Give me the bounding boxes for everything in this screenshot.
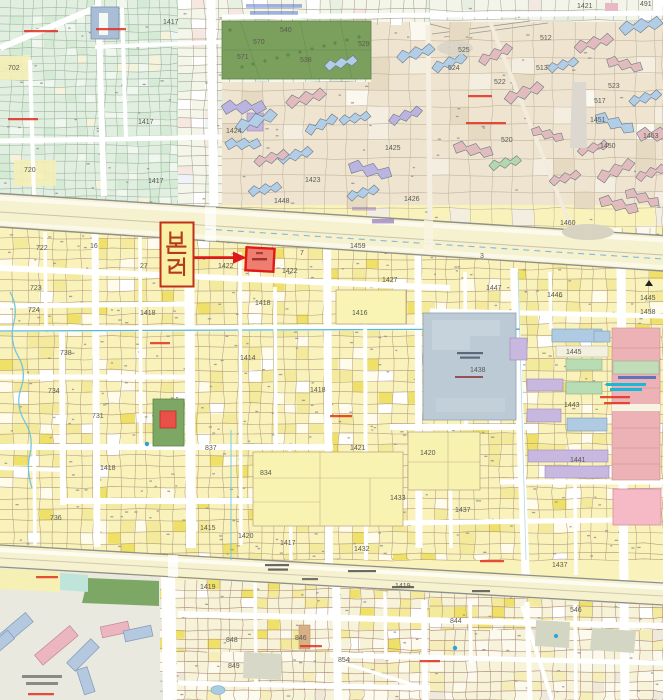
svg-text:1420: 1420: [420, 450, 436, 457]
svg-text:520: 520: [501, 137, 513, 144]
svg-text:538: 538: [300, 57, 312, 64]
svg-text:1415: 1415: [200, 525, 216, 532]
svg-text:570: 570: [253, 39, 265, 46]
svg-text:1414: 1414: [240, 355, 256, 362]
svg-text:1424: 1424: [226, 128, 242, 135]
svg-text:736: 736: [50, 515, 62, 522]
svg-text:512: 512: [540, 35, 552, 42]
svg-text:724: 724: [28, 307, 40, 314]
svg-text:1446: 1446: [547, 292, 563, 299]
svg-text:1419: 1419: [395, 583, 411, 590]
svg-text:854: 854: [338, 657, 350, 664]
svg-text:1417: 1417: [148, 178, 164, 185]
svg-text:723: 723: [30, 285, 42, 292]
svg-text:1417: 1417: [280, 540, 296, 547]
svg-text:27: 27: [140, 263, 148, 270]
svg-text:1437: 1437: [455, 507, 471, 514]
svg-text:837: 837: [205, 445, 217, 452]
svg-text:1450: 1450: [600, 143, 616, 150]
svg-text:720: 720: [24, 167, 36, 174]
svg-text:834: 834: [260, 470, 272, 477]
svg-text:525: 525: [458, 47, 470, 54]
svg-text:540: 540: [280, 27, 292, 34]
svg-text:1445: 1445: [566, 349, 582, 356]
svg-text:7: 7: [300, 250, 304, 257]
svg-text:1443: 1443: [564, 402, 580, 409]
svg-text:3: 3: [480, 253, 484, 260]
svg-text:1419: 1419: [200, 584, 216, 591]
svg-text:1437: 1437: [552, 562, 568, 569]
svg-text:846: 846: [295, 635, 307, 642]
svg-text:1458: 1458: [640, 309, 656, 316]
svg-text:1422: 1422: [218, 263, 234, 270]
svg-text:1422: 1422: [282, 268, 298, 275]
svg-text:1421: 1421: [577, 3, 593, 10]
svg-text:738: 738: [60, 350, 72, 357]
svg-text:1453: 1453: [643, 133, 659, 140]
svg-text:491: 491: [640, 1, 652, 8]
svg-text:1420: 1420: [238, 533, 254, 540]
svg-text:1418: 1418: [255, 300, 271, 307]
svg-text:16: 16: [90, 243, 98, 250]
svg-text:1438: 1438: [470, 367, 486, 374]
svg-text:848: 848: [226, 637, 238, 644]
svg-text:1426: 1426: [404, 196, 420, 203]
svg-text:1460: 1460: [560, 220, 576, 227]
svg-text:1459: 1459: [350, 243, 366, 250]
svg-text:731: 731: [92, 413, 104, 420]
svg-text:546: 546: [570, 607, 582, 614]
svg-text:1433: 1433: [390, 495, 406, 502]
svg-text:522: 522: [494, 79, 506, 86]
svg-text:1416: 1416: [352, 310, 368, 317]
svg-text:734: 734: [48, 388, 60, 395]
svg-text:1418: 1418: [100, 465, 116, 472]
svg-text:1417: 1417: [163, 19, 179, 26]
svg-text:722: 722: [36, 245, 48, 252]
svg-text:1441: 1441: [570, 457, 586, 464]
svg-text:1417: 1417: [138, 119, 154, 126]
svg-text:1447: 1447: [486, 285, 502, 292]
svg-text:849: 849: [228, 663, 240, 670]
svg-text:1427: 1427: [382, 277, 398, 284]
svg-text:844: 844: [450, 618, 462, 625]
svg-text:1418: 1418: [310, 387, 326, 394]
svg-text:1418: 1418: [140, 310, 156, 317]
svg-text:571: 571: [237, 54, 249, 61]
svg-text:1432: 1432: [354, 546, 370, 553]
svg-text:1423: 1423: [305, 177, 321, 184]
svg-text:702: 702: [8, 65, 20, 72]
svg-text:523: 523: [608, 83, 620, 90]
svg-text:529: 529: [358, 41, 370, 48]
svg-text:513: 513: [536, 65, 548, 72]
svg-text:1425: 1425: [385, 145, 401, 152]
svg-text:1448: 1448: [274, 198, 290, 205]
svg-text:1445: 1445: [640, 295, 656, 302]
svg-text:1451: 1451: [590, 117, 606, 124]
svg-text:1421: 1421: [350, 445, 366, 452]
svg-text:517: 517: [594, 98, 606, 105]
svg-text:524: 524: [448, 65, 460, 72]
